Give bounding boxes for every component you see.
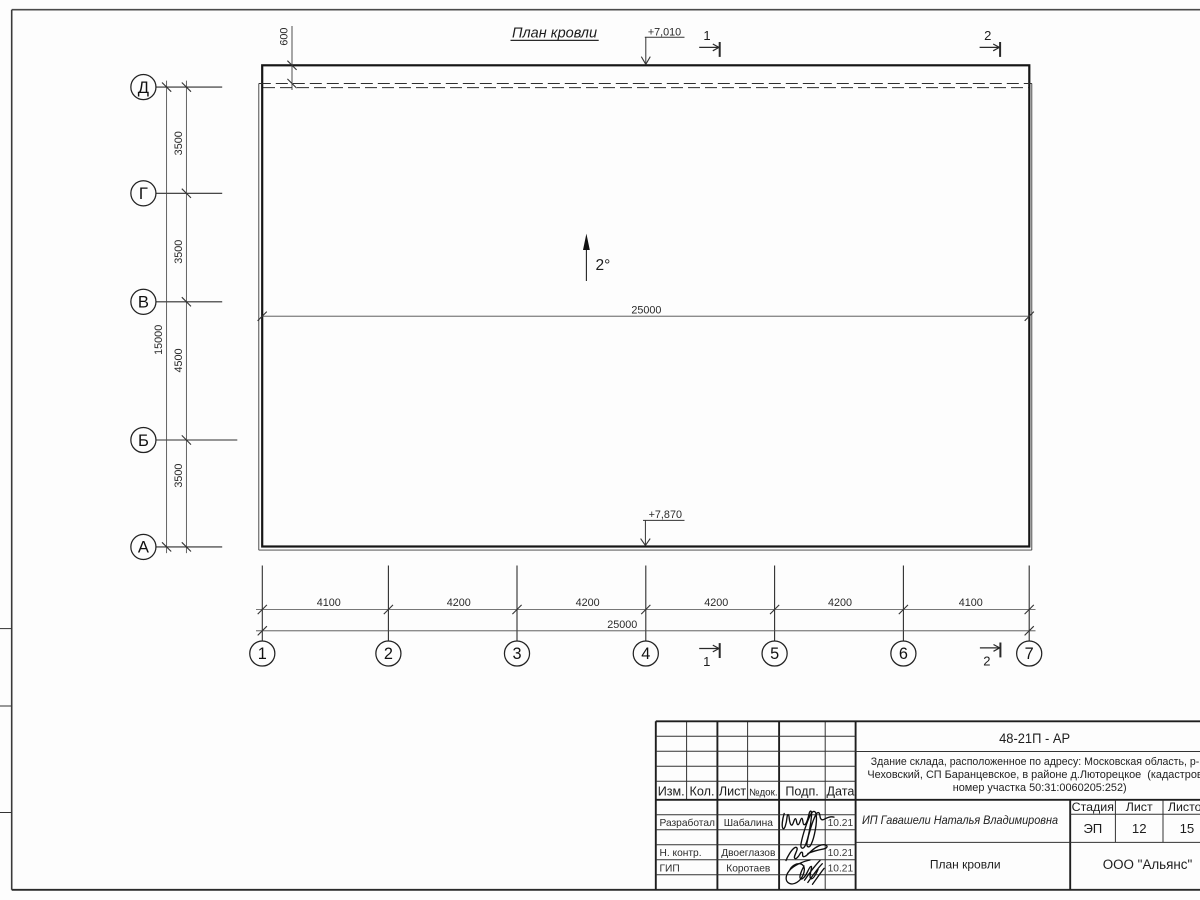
- svg-text:10.21: 10.21: [828, 818, 854, 829]
- svg-text:4500: 4500: [173, 348, 185, 372]
- svg-text:4200: 4200: [576, 597, 600, 609]
- svg-text:25000: 25000: [607, 619, 637, 631]
- svg-text:Подп.: Подп.: [785, 784, 818, 798]
- svg-text:ЭП: ЭП: [1083, 821, 1102, 836]
- svg-text:Разработал: Разработал: [660, 817, 716, 829]
- svg-text:Лист: Лист: [1126, 800, 1153, 814]
- svg-text:4: 4: [641, 645, 650, 663]
- svg-text:Б: Б: [138, 431, 149, 450]
- svg-text:Изм.: Изм.: [658, 784, 685, 798]
- svg-text:ГИП: ГИП: [660, 863, 680, 874]
- svg-text:ООО "Альянс": ООО "Альянс": [1103, 857, 1193, 872]
- svg-text:Шабалина: Шабалина: [724, 817, 774, 829]
- svg-text:1: 1: [703, 654, 710, 669]
- svg-text:1: 1: [703, 28, 710, 43]
- svg-text:Лист: Лист: [719, 784, 747, 798]
- svg-text:План кровли: План кровли: [930, 857, 1001, 871]
- svg-text:+7,870: +7,870: [649, 509, 682, 521]
- svg-text:Д: Д: [138, 78, 149, 97]
- svg-text:В: В: [138, 293, 149, 312]
- svg-text:Н. контр.: Н. контр.: [660, 848, 702, 859]
- svg-text:4100: 4100: [317, 597, 341, 609]
- svg-text:2: 2: [984, 28, 991, 43]
- svg-text:+7,010: +7,010: [648, 26, 681, 38]
- svg-text:5: 5: [770, 645, 779, 663]
- svg-text:Г: Г: [139, 184, 148, 203]
- svg-text:7: 7: [1025, 645, 1034, 663]
- svg-text:Коротаев: Коротаев: [726, 863, 770, 874]
- svg-text:План кровли: План кровли: [512, 25, 597, 41]
- svg-text:Двоеглазов: Двоеглазов: [721, 848, 775, 859]
- svg-text:2: 2: [384, 645, 393, 663]
- svg-text:3500: 3500: [173, 464, 185, 488]
- svg-text:25000: 25000: [631, 304, 661, 316]
- svg-text:ИП Гавашели Наталья Владимиров: ИП Гавашели Наталья Владимировна: [862, 814, 1059, 827]
- svg-text:4200: 4200: [447, 597, 471, 609]
- svg-text:Здание склада, расположенное п: Здание склада, расположенное по адресу: …: [871, 756, 1200, 768]
- svg-text:2°: 2°: [596, 257, 611, 274]
- svg-text:12: 12: [1132, 821, 1147, 836]
- svg-text:4200: 4200: [828, 597, 852, 609]
- svg-text:10.21: 10.21: [828, 848, 854, 859]
- svg-text:4100: 4100: [959, 597, 983, 609]
- svg-text:6: 6: [899, 645, 908, 663]
- svg-text:15000: 15000: [153, 325, 165, 355]
- svg-text:2: 2: [983, 654, 990, 669]
- svg-text:15: 15: [1180, 821, 1195, 836]
- svg-text:3500: 3500: [173, 240, 185, 264]
- svg-text:Стадия: Стадия: [1072, 800, 1114, 814]
- svg-text:1: 1: [258, 645, 267, 663]
- svg-text:3500: 3500: [173, 131, 185, 155]
- svg-text:№док.: №док.: [749, 787, 778, 798]
- svg-text:3: 3: [512, 645, 521, 663]
- svg-text:4200: 4200: [704, 597, 728, 609]
- svg-text:10.21: 10.21: [828, 863, 854, 874]
- svg-text:номер участка 50:31:0060205:25: номер участка 50:31:0060205:252): [953, 782, 1127, 794]
- svg-text:Листов: Листов: [1168, 800, 1200, 814]
- svg-text:48-21П - АР: 48-21П - АР: [999, 731, 1070, 746]
- svg-text:Кол.: Кол.: [690, 784, 715, 798]
- svg-text:600: 600: [279, 28, 291, 46]
- svg-text:Чеховский, СП Баранцевское, в: Чеховский, СП Баранцевское, в районе д.Л…: [867, 769, 1200, 781]
- svg-text:А: А: [138, 538, 150, 557]
- svg-text:Дата: Дата: [826, 784, 854, 798]
